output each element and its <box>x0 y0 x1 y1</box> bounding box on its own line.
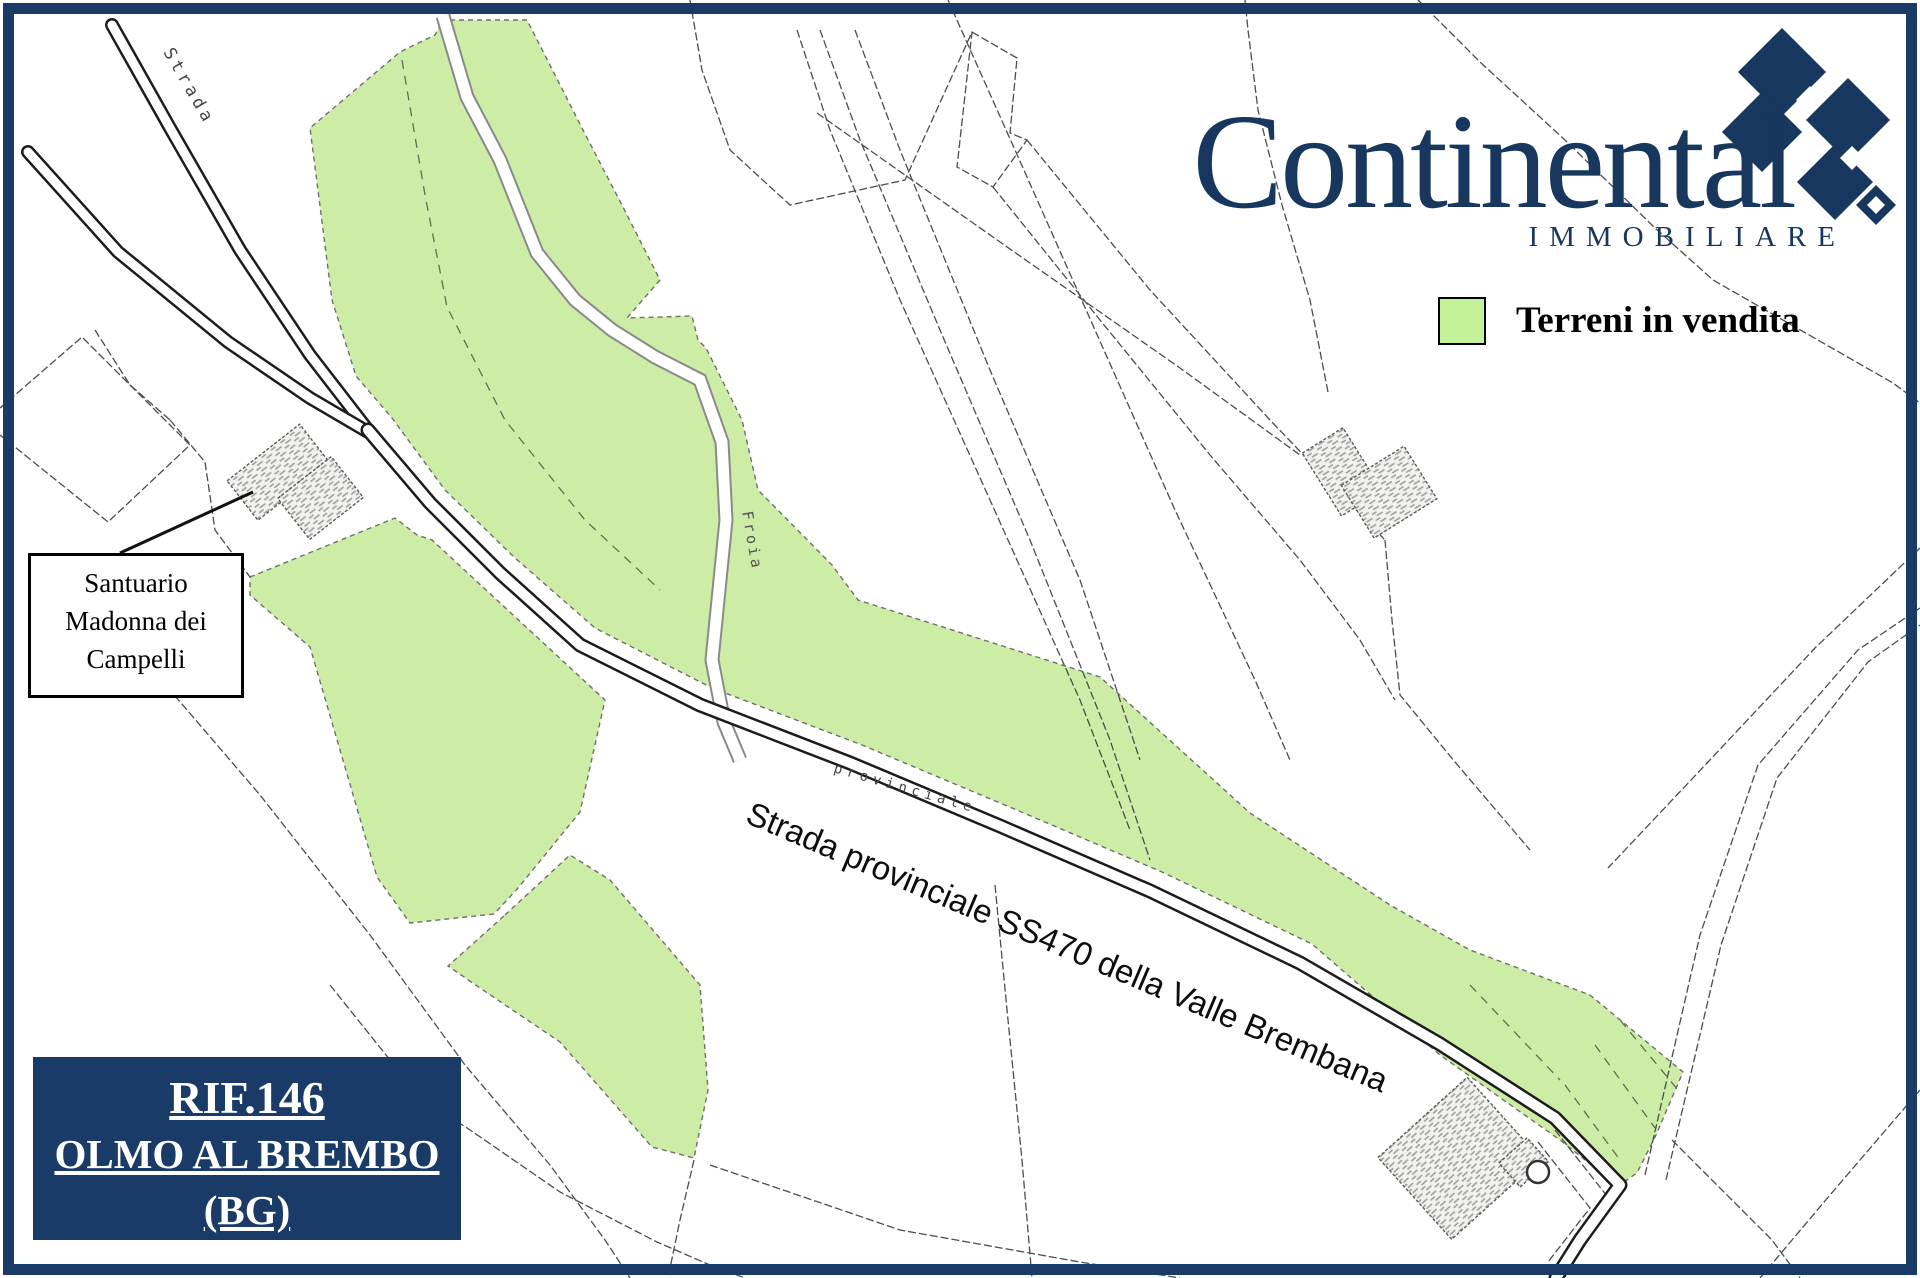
road-name-label: Strada provinciale SS470 della Valle Bre… <box>741 794 1394 1099</box>
building-upper-right <box>1302 405 1437 546</box>
brand-wordmark: Continental <box>1192 94 1794 230</box>
map-circle-symbol <box>1527 1161 1549 1183</box>
legend-swatch-terreni <box>1438 297 1486 345</box>
annotation-santuario: Santuario Madonna dei Campelli <box>28 553 244 698</box>
annotation-leader-line <box>120 492 253 553</box>
reference-location: OLMO AL BREMBO <box>33 1126 461 1182</box>
annotation-line-3: Campelli <box>31 640 241 678</box>
reference-number: RIF.146 <box>33 1070 461 1126</box>
legend: Terreni in vendita <box>1438 297 1800 345</box>
annotation-line-2: Madonna dei <box>31 602 241 640</box>
flyer-canvas: Strada Froia provinciale Strada provinci… <box>0 0 1920 1278</box>
reference-box: RIF.146 OLMO AL BREMBO (BG) <box>33 1057 461 1240</box>
building-santuario <box>227 421 363 557</box>
annotation-line-1: Santuario <box>31 564 241 602</box>
reference-province: (BG) <box>33 1182 461 1238</box>
road-provinciale-west <box>28 152 368 432</box>
brand-subtitle: IMMOBILIARE <box>1528 221 1846 254</box>
legend-label: Terreni in vendita <box>1516 297 1800 345</box>
